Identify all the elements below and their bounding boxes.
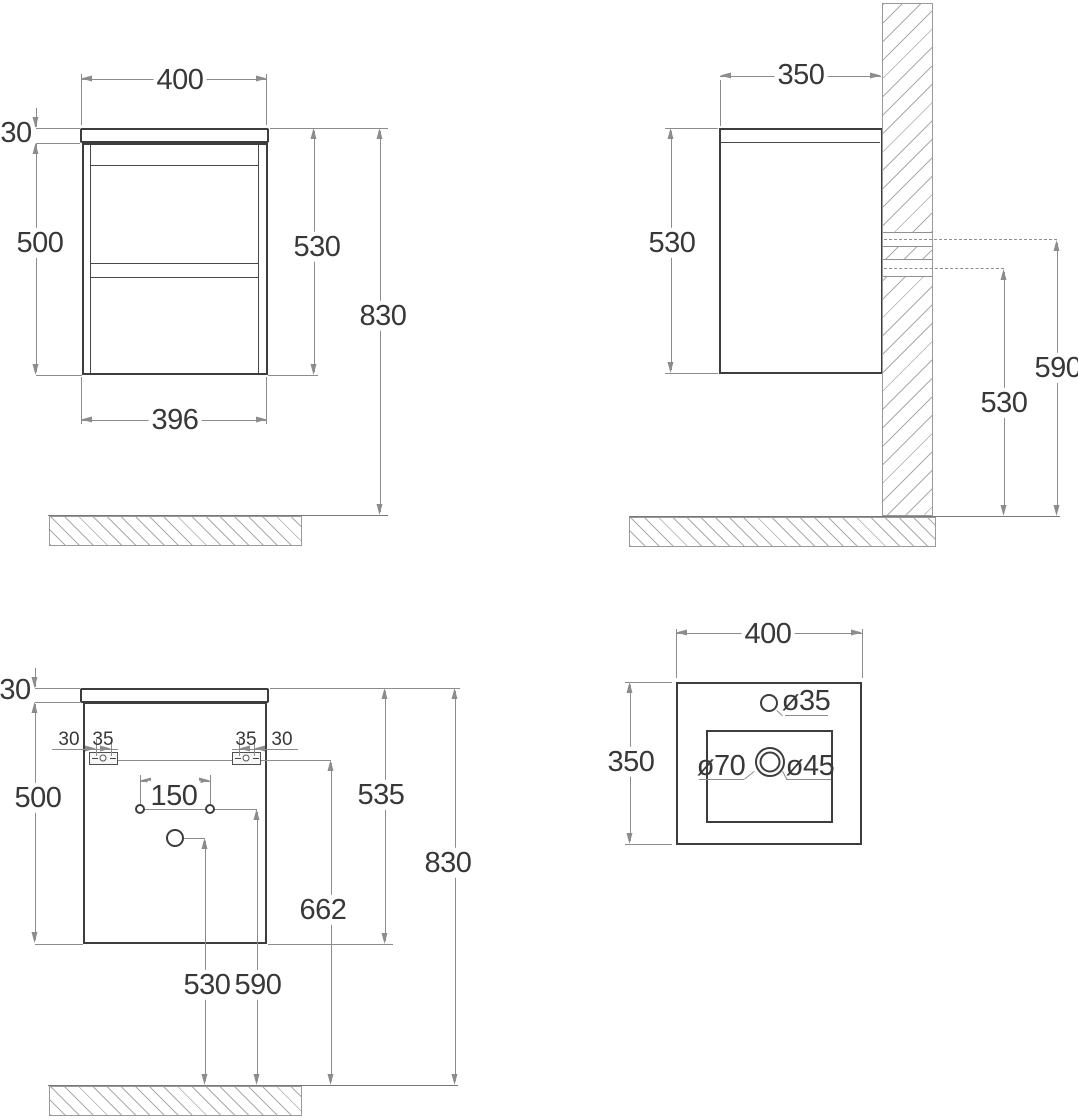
dim-label-basin-width: 400 — [742, 619, 795, 649]
dim-label-faucet-hole: ø35 — [779, 686, 833, 716]
dim-label-drain-inner: ø45 — [783, 751, 837, 781]
technical-drawing-canvas: 400 30 500 530 830 396 — [0, 0, 1078, 1120]
arrow — [676, 630, 687, 636]
dim-label-basin-depth: 350 — [605, 747, 658, 777]
ext-line — [862, 629, 863, 678]
arrow — [851, 630, 862, 636]
drain-hole-inner — [760, 752, 781, 773]
faucet-hole — [760, 694, 778, 712]
dim-label-drain-outer: ø70 — [694, 751, 748, 781]
ext-line — [625, 844, 672, 845]
arrow — [627, 833, 633, 844]
leader-line — [699, 779, 744, 780]
basin-top-view: 400 350 ø35 ø70 ø45 — [0, 0, 1078, 1120]
leader-line — [786, 779, 831, 780]
ext-line — [676, 629, 677, 678]
arrow — [627, 682, 633, 693]
